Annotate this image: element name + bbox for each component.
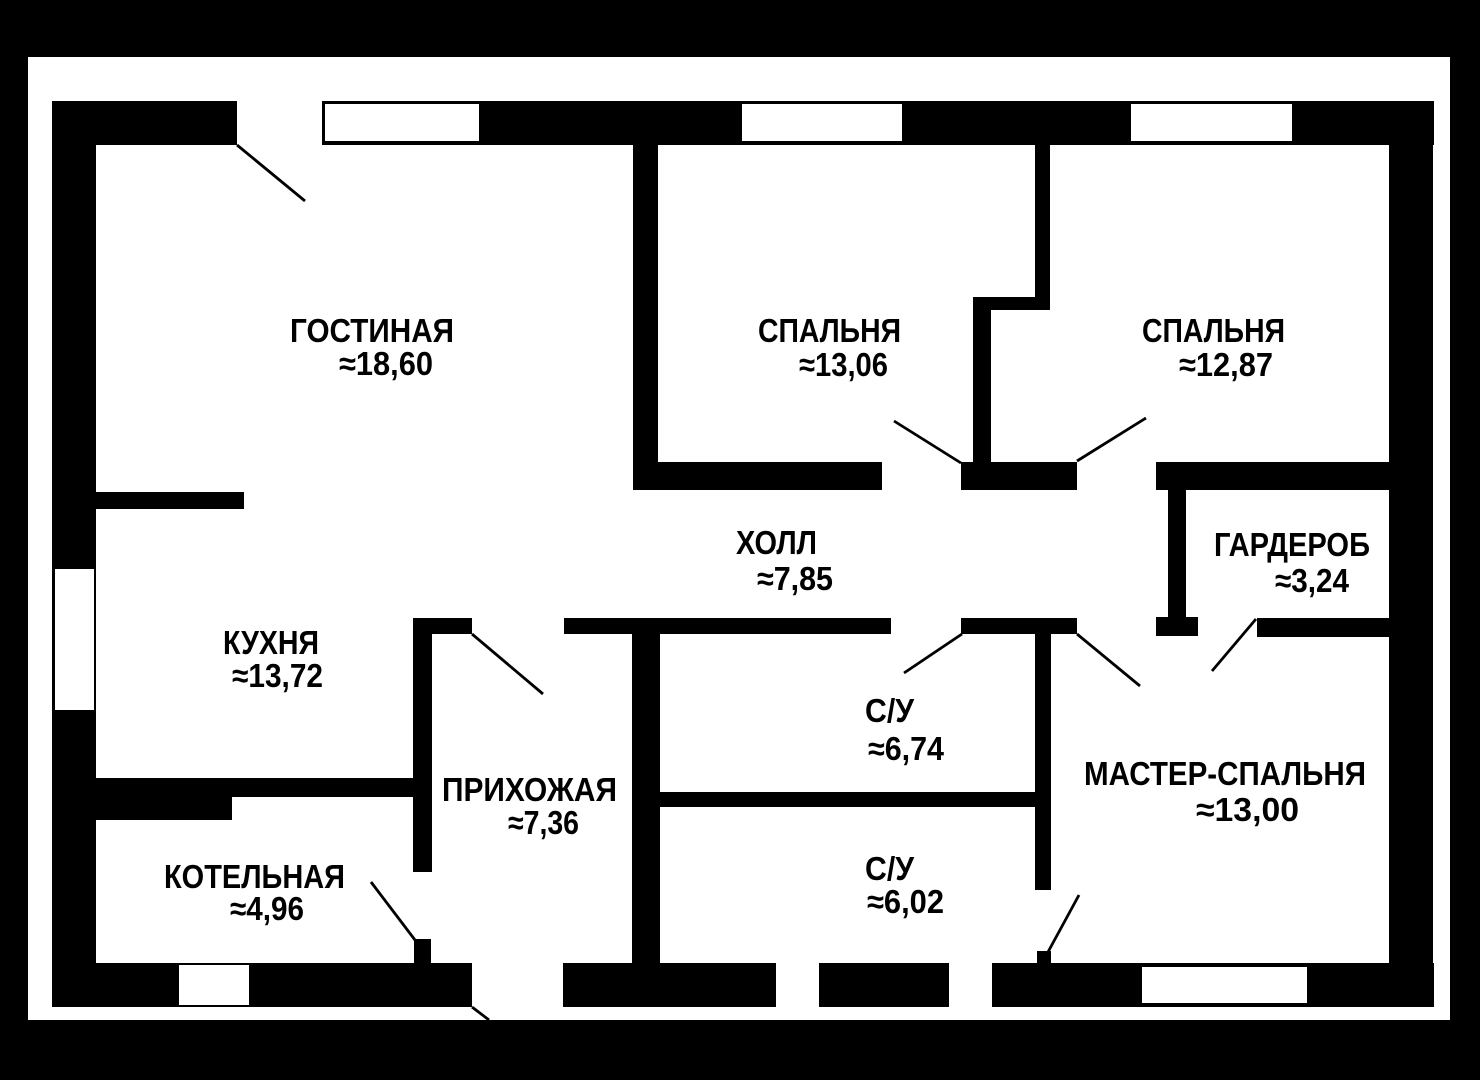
- svg-text:ПРИХОЖАЯ: ПРИХОЖАЯ: [442, 771, 617, 808]
- svg-text:≈3,24: ≈3,24: [1275, 562, 1350, 599]
- svg-text:ГАРДЕРОБ: ГАРДЕРОБ: [1214, 526, 1370, 563]
- svg-text:С/У: С/У: [865, 692, 914, 729]
- svg-text:ГОСТИНАЯ: ГОСТИНАЯ: [290, 312, 454, 349]
- svg-text:≈13,06: ≈13,06: [799, 346, 888, 383]
- svg-text:≈6,02: ≈6,02: [867, 883, 944, 920]
- svg-text:≈12,87: ≈12,87: [1179, 346, 1273, 383]
- svg-text:≈13,00: ≈13,00: [1196, 791, 1299, 828]
- svg-text:≈7,36: ≈7,36: [508, 804, 579, 841]
- svg-text:СПАЛЬНЯ: СПАЛЬНЯ: [1142, 312, 1285, 349]
- svg-text:С/У: С/У: [865, 850, 914, 887]
- svg-text:≈4,96: ≈4,96: [230, 890, 304, 927]
- svg-text:МАСТЕР-СПАЛЬНЯ: МАСТЕР-СПАЛЬНЯ: [1084, 755, 1366, 792]
- svg-text:≈6,74: ≈6,74: [868, 730, 945, 767]
- svg-text:≈18,60: ≈18,60: [339, 345, 433, 382]
- svg-text:≈7,85: ≈7,85: [757, 560, 833, 597]
- svg-text:КУХНЯ: КУХНЯ: [223, 624, 319, 661]
- svg-text:СПАЛЬНЯ: СПАЛЬНЯ: [758, 312, 901, 349]
- svg-text:ХОЛЛ: ХОЛЛ: [736, 524, 817, 561]
- svg-text:≈13,72: ≈13,72: [232, 657, 323, 694]
